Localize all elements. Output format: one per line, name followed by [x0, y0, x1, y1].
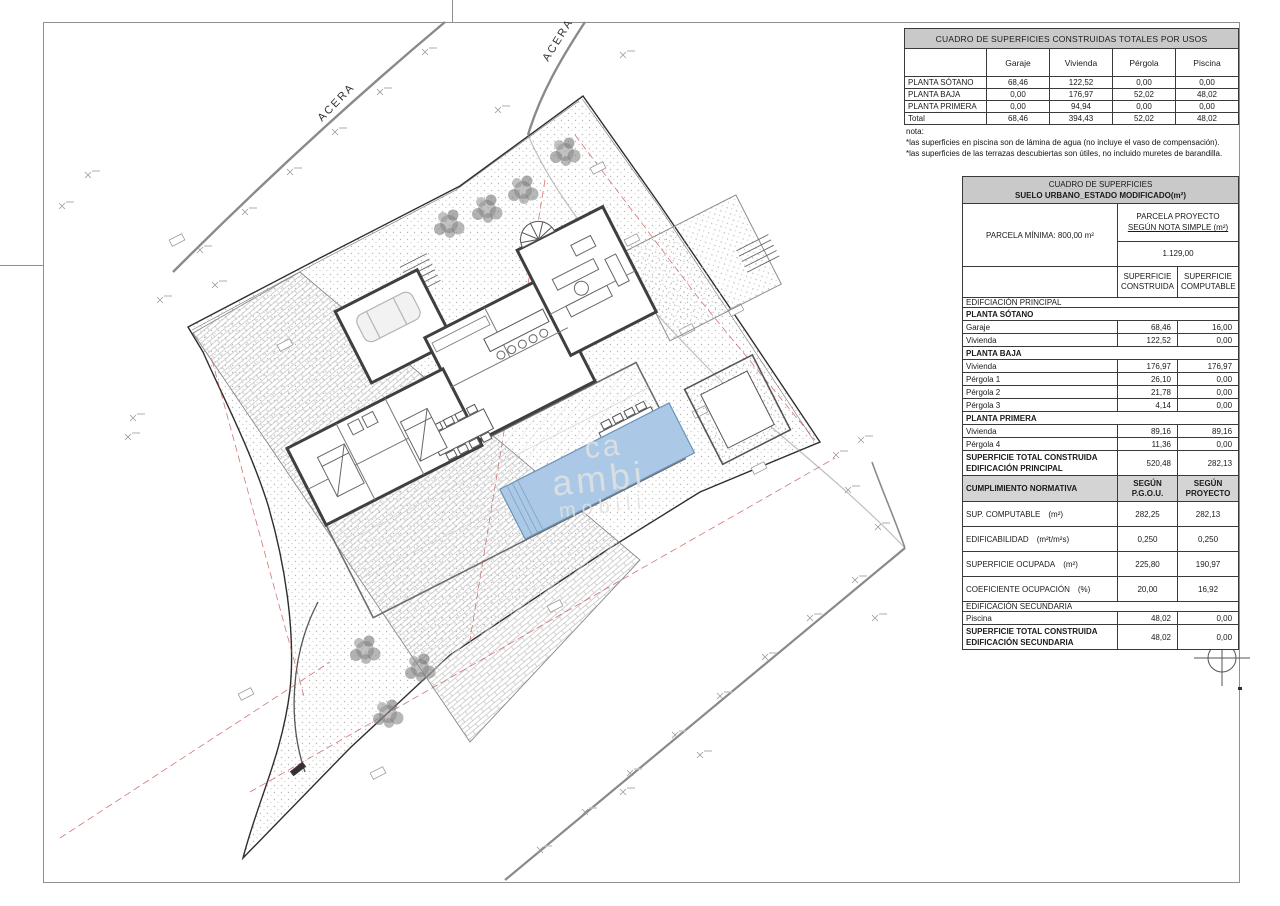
row-value-1: 68,46 — [1118, 321, 1178, 334]
totals-col-blank — [905, 49, 987, 77]
surface-table-row-normhdr: CUMPLIMIENTO NORMATIVASEGÚN P.G.O.U.SEGÚ… — [963, 476, 1239, 502]
totals-table-notes: nota: *las superficies en piscina son de… — [906, 126, 1238, 159]
row-value: 394,43 — [1050, 113, 1113, 125]
surface-table-title: CUADRO DE SUPERFICIES SUELO URBANO_ESTAD… — [963, 177, 1239, 204]
norm-label-text: SUPERFICIE OCUPADA — [966, 560, 1055, 569]
row-value-1: SEGÚN P.G.O.U. — [1118, 476, 1178, 502]
totals-col-pergola: Pérgola — [1113, 49, 1176, 77]
row-label: PLANTA SÓTANO — [905, 77, 987, 89]
surface-table-row-section: EDIFCIACIÓN PRINCIPAL — [963, 298, 1239, 308]
row-value: 0,00 — [1113, 77, 1176, 89]
parcela-proyecto-valor: 1.129,00 — [1118, 241, 1239, 266]
norm-label-text: SUP. COMPUTABLE — [966, 510, 1040, 519]
section-label: PLANTA PRIMERA — [963, 412, 1239, 425]
row-value-2: 0,00 — [1178, 386, 1239, 399]
surface-col-header-row: SUPERFICIE CONSTRUIDA SUPERFICIE COMPUTA… — [963, 267, 1239, 298]
plan-sheet: { "sheet": { "acera_left": "ACERA", "ace… — [0, 0, 1280, 906]
norm-value-proyecto: 282,13 — [1178, 502, 1239, 527]
row-value-2: 0,00 — [1178, 612, 1239, 625]
norm-value-pgou: 225,80 — [1118, 552, 1178, 577]
totals-table-row: PLANTA PRIMERA0,0094,940,000,00 — [905, 101, 1239, 113]
row-label: Vivienda — [963, 334, 1118, 347]
parcela-proyecto-line2: SEGÚN NOTA SIMPLE (m²) — [1128, 223, 1228, 232]
row-value-1: 11,36 — [1118, 438, 1178, 451]
row-value-1: 122,52 — [1118, 334, 1178, 347]
row-value-2: 0,00 — [1178, 625, 1239, 650]
totals-col-vivienda: Vivienda — [1050, 49, 1113, 77]
row-value: 122,52 — [1050, 77, 1113, 89]
norm-label: SUP. COMPUTABLE(m²) — [963, 502, 1118, 527]
section-label: EDIFCIACIÓN PRINCIPAL — [963, 298, 1239, 308]
row-label: Pérgola 3 — [963, 399, 1118, 412]
row-value-1: 21,78 — [1118, 386, 1178, 399]
row-label: Vivienda — [963, 360, 1118, 373]
surface-table-row-data: Pérgola 34,140,00 — [963, 399, 1239, 412]
row-label: Garaje — [963, 321, 1118, 334]
acera-right-label: ACERA — [540, 17, 576, 64]
row-value-2: SEGÚN PROYECTO — [1178, 476, 1239, 502]
surface-col-construida: SUPERFICIE CONSTRUIDA — [1118, 267, 1178, 298]
norm-unit: (m²t/m²s) — [1037, 535, 1069, 544]
totals-col-garaje: Garaje — [987, 49, 1050, 77]
norm-label: EDIFICABILIDAD(m²t/m²s) — [963, 527, 1118, 552]
row-value-1: 26,10 — [1118, 373, 1178, 386]
row-label: Pérgola 2 — [963, 386, 1118, 399]
norm-label: COEFICIENTE OCUPACIÓN(%) — [963, 577, 1118, 602]
row-value: 52,02 — [1113, 89, 1176, 101]
norm-label-text: COEFICIENTE OCUPACIÓN — [966, 585, 1070, 594]
row-value-2: 176,97 — [1178, 360, 1239, 373]
surface-col-blank — [963, 267, 1118, 298]
surface-table-row-norm: SUP. COMPUTABLE(m²)282,25282,13 — [963, 502, 1239, 527]
totals-table-header-row: Garaje Vivienda Pérgola Piscina — [905, 49, 1239, 77]
surface-table-row-data: Vivienda176,97176,97 — [963, 360, 1239, 373]
totals-table-title: CUADRO DE SUPERFICIES CONSTRUIDAS TOTALE… — [905, 29, 1239, 49]
row-value-2: 0,00 — [1178, 438, 1239, 451]
row-label: CUMPLIMIENTO NORMATIVA — [963, 476, 1118, 502]
norm-value-pgou: 0,250 — [1118, 527, 1178, 552]
row-value-1: 48,02 — [1118, 612, 1178, 625]
row-value-1: 520,48 — [1118, 451, 1178, 476]
surface-table-row-data: Pérgola 126,100,00 — [963, 373, 1239, 386]
section-label: PLANTA BAJA — [963, 347, 1239, 360]
surface-table-row-data: Garaje68,4616,00 — [963, 321, 1239, 334]
row-value: 68,46 — [987, 113, 1050, 125]
norm-label-text: EDIFICABILIDAD — [966, 535, 1029, 544]
row-value-1: 176,97 — [1118, 360, 1178, 373]
norm-value-proyecto: 16,92 — [1178, 577, 1239, 602]
norm-unit: (m²) — [1063, 560, 1078, 569]
surface-table-row-total: SUPERFICIE TOTAL CONSTRUIDA EDIFICACIÓN … — [963, 451, 1239, 476]
row-label: Pérgola 4 — [963, 438, 1118, 451]
section-label: PLANTA SÓTANO — [963, 308, 1239, 321]
parcela-minima: PARCELA MÍNIMA: 800,00 m² — [963, 204, 1118, 267]
row-value-2: 0,00 — [1178, 373, 1239, 386]
surface-table-row-sub: PLANTA BAJA — [963, 347, 1239, 360]
norm-unit: (%) — [1078, 585, 1090, 594]
surface-table-row-data: Pérgola 221,780,00 — [963, 386, 1239, 399]
row-label: Piscina — [963, 612, 1118, 625]
section-label: EDIFICACIÓN SECUNDARIA — [963, 602, 1239, 612]
totals-table-row: PLANTA BAJA0,00176,9752,0248,02 — [905, 89, 1239, 101]
surface-table-row-data: Vivienda122,520,00 — [963, 334, 1239, 347]
norm-unit: (m²) — [1048, 510, 1063, 519]
row-value-1: 89,16 — [1118, 425, 1178, 438]
row-label: Vivienda — [963, 425, 1118, 438]
surface-table-row-data: Vivienda89,1689,16 — [963, 425, 1239, 438]
surface-col-computable: SUPERFICIE COMPUTABLE — [1178, 267, 1239, 298]
row-value: 48,02 — [1176, 89, 1239, 101]
row-value-1: 48,02 — [1118, 625, 1178, 650]
note-line: *las superficies de las terrazas descubi… — [906, 148, 1238, 159]
row-value-2: 282,13 — [1178, 451, 1239, 476]
parcela-proyecto-line1: PARCELA PROYECTO — [1136, 212, 1219, 221]
row-value-2: 0,00 — [1178, 399, 1239, 412]
row-value-2: 16,00 — [1178, 321, 1239, 334]
row-value: 52,02 — [1113, 113, 1176, 125]
note-line: *las superficies en piscina son de lámin… — [906, 137, 1238, 148]
row-label: Pérgola 1 — [963, 373, 1118, 386]
row-label: PLANTA PRIMERA — [905, 101, 987, 113]
surface-table-row-norm: COEFICIENTE OCUPACIÓN(%)20,0016,92 — [963, 577, 1239, 602]
totals-col-piscina: Piscina — [1176, 49, 1239, 77]
row-label: Total — [905, 113, 987, 125]
totals-table: CUADRO DE SUPERFICIES CONSTRUIDAS TOTALE… — [904, 28, 1239, 125]
surface-table-row-data: Piscina48,020,00 — [963, 612, 1239, 625]
row-value: 0,00 — [1176, 101, 1239, 113]
row-label: SUPERFICIE TOTAL CONSTRUIDA EDIFICACIÓN … — [963, 451, 1118, 476]
surface-table-row-sub: PLANTA SÓTANO — [963, 308, 1239, 321]
surface-title-line1: CUADRO DE SUPERFICIES — [1049, 180, 1153, 189]
norm-value-pgou: 282,25 — [1118, 502, 1178, 527]
norm-value-proyecto: 190,97 — [1178, 552, 1239, 577]
surface-table-row-total: SUPERFICIE TOTAL CONSTRUIDA EDIFICACIÓN … — [963, 625, 1239, 650]
norm-value-proyecto: 0,250 — [1178, 527, 1239, 552]
surface-table-row-norm: SUPERFICIE OCUPADA(m²)225,80190,97 — [963, 552, 1239, 577]
row-value-2: 0,00 — [1178, 334, 1239, 347]
row-value: 0,00 — [1113, 101, 1176, 113]
row-value: 176,97 — [1050, 89, 1113, 101]
totals-table-row: PLANTA SÓTANO68,46122,520,000,00 — [905, 77, 1239, 89]
surface-table: CUADRO DE SUPERFICIES SUELO URBANO_ESTAD… — [962, 176, 1239, 650]
row-value: 94,94 — [1050, 101, 1113, 113]
parcela-row: PARCELA MÍNIMA: 800,00 m² PARCELA PROYEC… — [963, 204, 1239, 242]
norm-label: SUPERFICIE OCUPADA(m²) — [963, 552, 1118, 577]
row-value: 0,00 — [987, 101, 1050, 113]
surface-title-line2: SUELO URBANO_ESTADO MODIFICADO(m²) — [966, 190, 1235, 201]
surface-table-row-sub: PLANTA PRIMERA — [963, 412, 1239, 425]
row-value: 0,00 — [1176, 77, 1239, 89]
row-value: 68,46 — [987, 77, 1050, 89]
norm-value-pgou: 20,00 — [1118, 577, 1178, 602]
row-label: PLANTA BAJA — [905, 89, 987, 101]
row-value-2: 89,16 — [1178, 425, 1239, 438]
surface-table-row-section: EDIFICACIÓN SECUNDARIA — [963, 602, 1239, 612]
parcela-proyecto-label: PARCELA PROYECTO SEGÚN NOTA SIMPLE (m²) — [1118, 204, 1239, 242]
note-line: nota: — [906, 126, 1238, 137]
totals-table-row: Total68,46394,4352,0248,02 — [905, 113, 1239, 125]
surface-table-row-norm: EDIFICABILIDAD(m²t/m²s)0,2500,250 — [963, 527, 1239, 552]
surface-table-row-data: Pérgola 411,360,00 — [963, 438, 1239, 451]
row-label: SUPERFICIE TOTAL CONSTRUIDA EDIFICACIÓN … — [963, 625, 1118, 650]
row-value: 48,02 — [1176, 113, 1239, 125]
row-value: 0,00 — [987, 89, 1050, 101]
row-value-1: 4,14 — [1118, 399, 1178, 412]
